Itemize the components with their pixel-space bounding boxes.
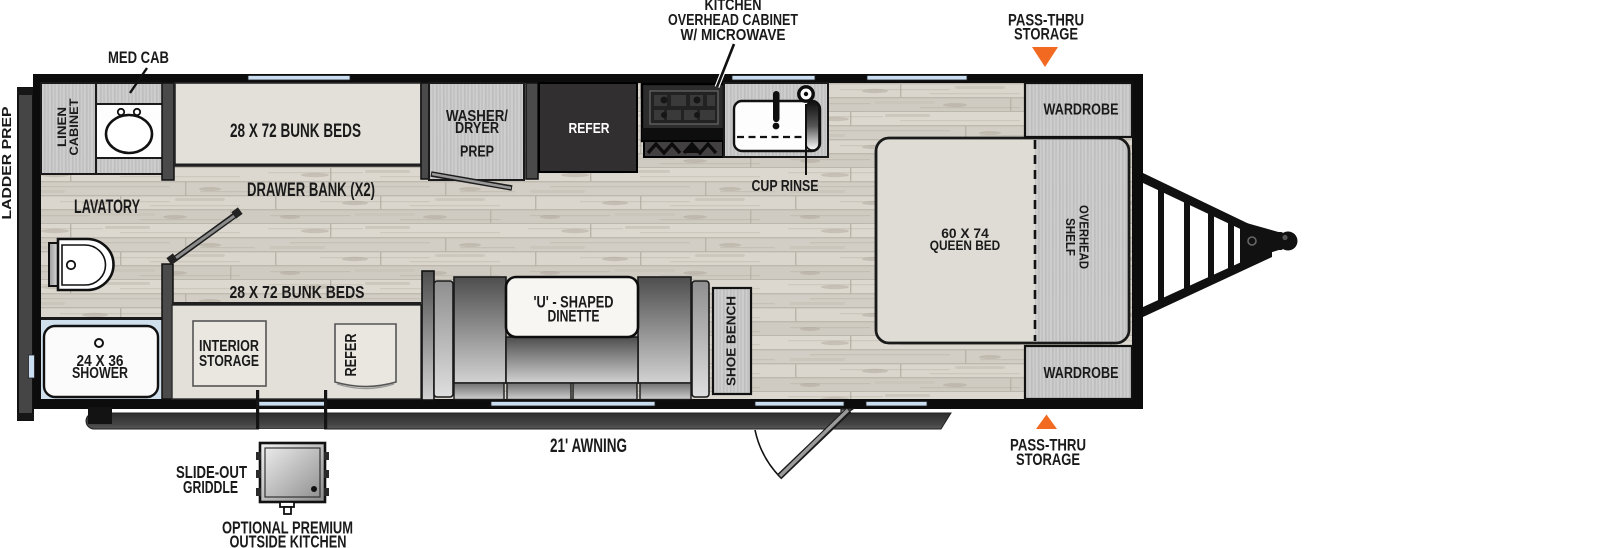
svg-text:STORAGE: STORAGE [199,353,259,370]
svg-text:W/ MICROWAVE: W/ MICROWAVE [681,27,786,44]
svg-text:21' AWNING: 21' AWNING [550,436,627,457]
svg-text:CABINET: CABINET [69,99,81,156]
svg-text:SHELF: SHELF [1063,218,1078,256]
svg-text:PREP: PREP [460,144,494,161]
svg-text:WARDROBE: WARDROBE [1044,365,1119,382]
svg-text:28 X 72 BUNK BEDS: 28 X 72 BUNK BEDS [230,121,361,142]
svg-text:DRYER: DRYER [455,120,499,137]
svg-text:REFER: REFER [569,120,610,137]
svg-text:OUTSIDE KITCHEN: OUTSIDE KITCHEN [230,532,347,548]
svg-text:MED CAB: MED CAB [108,49,169,67]
svg-text:DINETTE: DINETTE [548,307,600,326]
svg-text:SHOE BENCH: SHOE BENCH [724,296,739,386]
svg-text:CUP RINSE: CUP RINSE [752,178,819,195]
svg-text:WARDROBE: WARDROBE [1044,102,1119,119]
svg-text:GRIDDLE: GRIDDLE [183,477,238,497]
svg-text:QUEEN BED: QUEEN BED [930,237,1001,253]
svg-text:SHOWER: SHOWER [72,365,128,382]
svg-text:28 X 72 BUNK BEDS: 28 X 72 BUNK BEDS [230,282,365,302]
svg-text:LADDER PREP: LADDER PREP [0,107,14,220]
svg-text:DRAWER BANK (X2): DRAWER BANK (X2) [247,180,375,201]
svg-text:STORAGE: STORAGE [1016,450,1080,469]
svg-text:STORAGE: STORAGE [1014,25,1078,44]
svg-text:REFER: REFER [343,334,360,377]
svg-text:LINEN: LINEN [57,107,69,147]
svg-text:LAVATORY: LAVATORY [74,197,140,218]
